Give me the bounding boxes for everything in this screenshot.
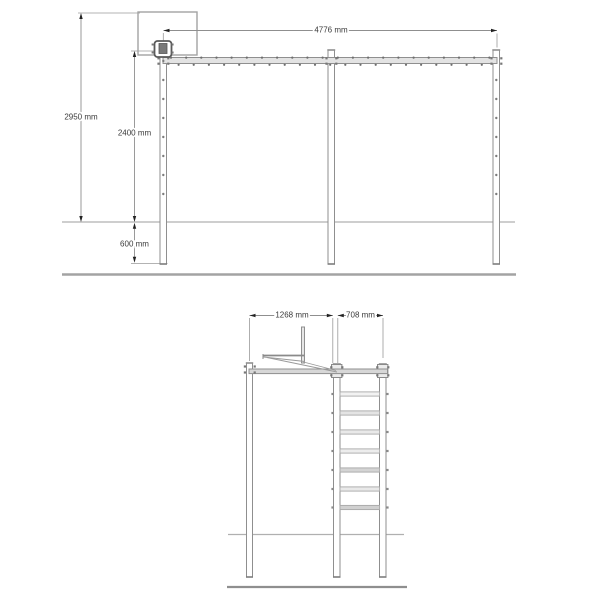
dimension-arrow (133, 223, 136, 229)
junction-bolt (500, 63, 502, 65)
post-hole (495, 98, 497, 100)
post-left (160, 44, 167, 264)
rung-bolt (331, 488, 333, 490)
rail-bolt (185, 57, 187, 59)
dimension-label: 2950 mm (64, 113, 98, 122)
junction-bolt (490, 63, 492, 65)
dimension-arrow (79, 13, 82, 19)
rail-bolt (420, 64, 422, 66)
hoop-bolt (172, 52, 174, 54)
rail-bolt (352, 57, 354, 59)
junction-bolt (244, 371, 246, 373)
hoop-bolt (152, 52, 154, 54)
rail-bolt (299, 64, 301, 66)
dimension-arrow (133, 216, 136, 222)
rail-bolt (200, 57, 202, 59)
rail-bolt (178, 64, 180, 66)
monkey-bar-rail (163, 58, 497, 64)
rail-bolt (314, 64, 316, 66)
dimension-label: 1268 mm (275, 311, 309, 320)
post-hole (495, 79, 497, 81)
rail-bolt (443, 57, 445, 59)
technical-drawing: 2950 mm2400 mm600 mm4776 mm 1268 mm708 m… (0, 0, 600, 600)
backboard-edge (302, 327, 305, 363)
rail-bolt (276, 57, 278, 59)
junction-bolt (244, 365, 246, 367)
rung-bolt (386, 393, 388, 395)
rail-bolt (223, 64, 225, 66)
dimension-1268-mm: 1268 mm (250, 311, 333, 320)
rail-bolt (466, 64, 468, 66)
post-hole (495, 117, 497, 119)
rung-bolt (331, 506, 333, 508)
junction-bolt (387, 374, 389, 376)
rung-bolt (331, 431, 333, 433)
ladder-rung (340, 449, 380, 453)
rung-bolt (331, 450, 333, 452)
rail-bolt (284, 64, 286, 66)
rail-bolt (413, 57, 415, 59)
junction-bolt (376, 374, 378, 376)
rail-bolt (253, 64, 255, 66)
rail-bolt (231, 57, 233, 59)
junction-bolt (500, 57, 502, 59)
hoop-bolt (152, 44, 154, 46)
junction-bolt (341, 366, 343, 368)
ladder-rung (340, 430, 380, 434)
post-hole (162, 174, 164, 176)
dimension-arrow (327, 314, 333, 317)
junction-bolt (254, 371, 256, 373)
rung-bolt (386, 506, 388, 508)
rail-bolt (268, 64, 270, 66)
rail-bolt (428, 57, 430, 59)
ladder-rung (340, 392, 380, 396)
rail-bolt (329, 64, 331, 66)
rail-bolt (375, 64, 377, 66)
junction-bolt (330, 374, 332, 376)
post-hole (495, 136, 497, 138)
dimension-708-mm: 708 mm (338, 311, 383, 320)
rung-bolt (331, 412, 333, 414)
dimension-arrow (491, 29, 497, 32)
post-hole (162, 60, 164, 62)
rung-bolt (331, 393, 333, 395)
dimension-600-mm: 600 mm (120, 223, 149, 263)
ladder-rung (340, 411, 380, 415)
rail-bolt (367, 57, 369, 59)
dimension-2950-mm: 2950 mm (64, 13, 98, 222)
dimension-arrow (164, 29, 170, 32)
technical-drawing-page: 2950 mm2400 mm600 mm4776 mm 1268 mm708 m… (0, 0, 600, 600)
junction-bolt (335, 63, 337, 65)
rung-bolt (386, 431, 388, 433)
rail-bolt (450, 64, 452, 66)
junction-bolt (490, 57, 492, 59)
dimension-label: 708 mm (346, 311, 375, 320)
dimension-arrow (133, 51, 136, 57)
rail-bolt (481, 64, 483, 66)
post-hole (162, 136, 164, 138)
rail-bolt (435, 64, 437, 66)
monkey-bar-rail-side (249, 369, 388, 374)
post-hole (495, 174, 497, 176)
rail-bolt (306, 57, 308, 59)
ladder-rung (340, 487, 380, 491)
rung-bolt (386, 412, 388, 414)
rail-bolt (170, 57, 172, 59)
rail-bolt (458, 57, 460, 59)
dimension-arrow (79, 216, 82, 222)
rung-bolt (386, 469, 388, 471)
junction-bolt (330, 366, 332, 368)
dimension-arrow (338, 314, 344, 317)
rail-bolt (473, 57, 475, 59)
side-view: 1268 mm708 mm (227, 311, 407, 587)
dimension-arrow (133, 257, 136, 263)
junction-bolt (157, 63, 159, 65)
dimension-label: 600 mm (120, 240, 149, 249)
rail-bolt (246, 57, 248, 59)
post-hole (495, 155, 497, 157)
dimension-label: 2400 mm (118, 129, 152, 138)
hoop-ring-mount (159, 44, 167, 54)
rail-bolt (261, 57, 263, 59)
rail-bolt (359, 64, 361, 66)
rail-bolt (382, 57, 384, 59)
dimension-4776-mm: 4776 mm (164, 26, 498, 35)
post-middle (328, 50, 335, 264)
post-hole (162, 117, 164, 119)
rail-bolt (390, 64, 392, 66)
hoop-bolt (172, 44, 174, 46)
post-hole (162, 193, 164, 195)
junction-bolt (167, 63, 169, 65)
rail-bolt (344, 64, 346, 66)
post-front (247, 363, 253, 577)
junction-bolt (341, 374, 343, 376)
rail-bolt (215, 57, 217, 59)
ladder-rung (340, 468, 380, 472)
ladder-rail-right (380, 364, 387, 577)
post-hole (162, 155, 164, 157)
rail-bolt (337, 57, 339, 59)
ladder-rung (340, 505, 380, 509)
rung-bolt (386, 488, 388, 490)
post-hole (495, 193, 497, 195)
dimension-arrow (377, 314, 383, 317)
front-view: 2950 mm2400 mm600 mm4776 mm (62, 12, 516, 275)
junction-bolt (387, 366, 389, 368)
junction-bolt (325, 63, 327, 65)
rail-bolt (291, 57, 293, 59)
rung-bolt (386, 450, 388, 452)
junction-bolt (325, 57, 327, 59)
dimension-label: 4776 mm (314, 26, 348, 35)
rail-bolt (488, 57, 490, 59)
post-hole (162, 98, 164, 100)
ladder-rail-left (334, 364, 341, 577)
rail-bolt (405, 64, 407, 66)
dimension-arrow (250, 314, 256, 317)
dimension-2400-mm: 2400 mm (118, 51, 152, 222)
rail-bolt (322, 57, 324, 59)
rung-bolt (331, 469, 333, 471)
post-hole (162, 79, 164, 81)
junction-bolt (376, 366, 378, 368)
rail-bolt (193, 64, 195, 66)
junction-bolt (254, 365, 256, 367)
rail-bolt (397, 57, 399, 59)
rail-bolt (208, 64, 210, 66)
rail-bolt (238, 64, 240, 66)
